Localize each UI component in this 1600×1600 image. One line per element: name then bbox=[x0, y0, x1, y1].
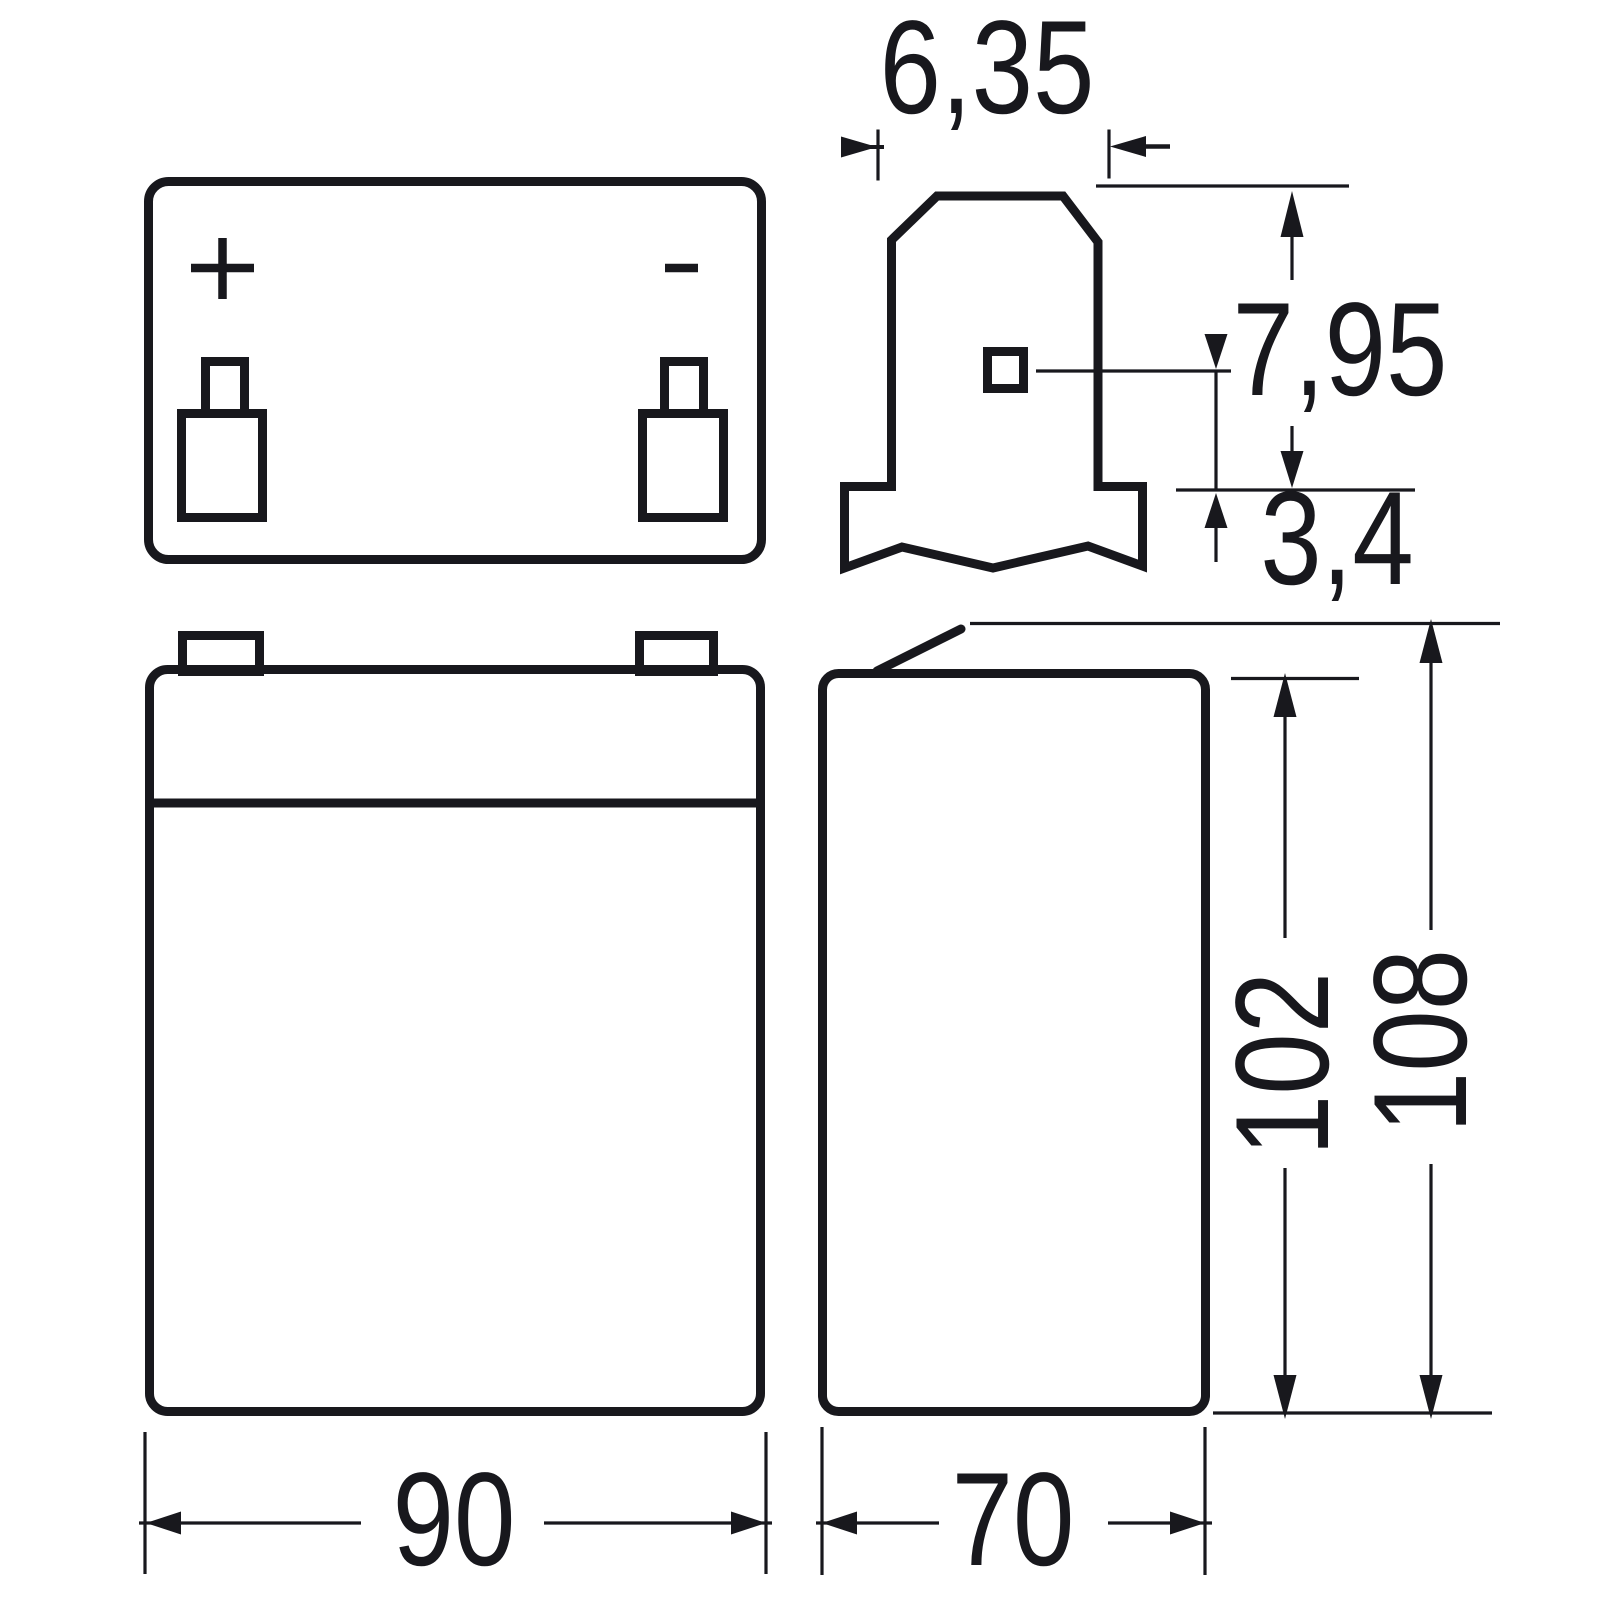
svg-text:90: 90 bbox=[393, 1444, 516, 1593]
svg-text:7,95: 7,95 bbox=[1233, 274, 1448, 423]
svg-text:3,4: 3,4 bbox=[1260, 463, 1413, 612]
svg-text:70: 70 bbox=[952, 1444, 1075, 1593]
svg-text:102: 102 bbox=[1207, 972, 1356, 1156]
svg-text:6,35: 6,35 bbox=[880, 0, 1095, 141]
svg-text:108: 108 bbox=[1345, 949, 1494, 1133]
